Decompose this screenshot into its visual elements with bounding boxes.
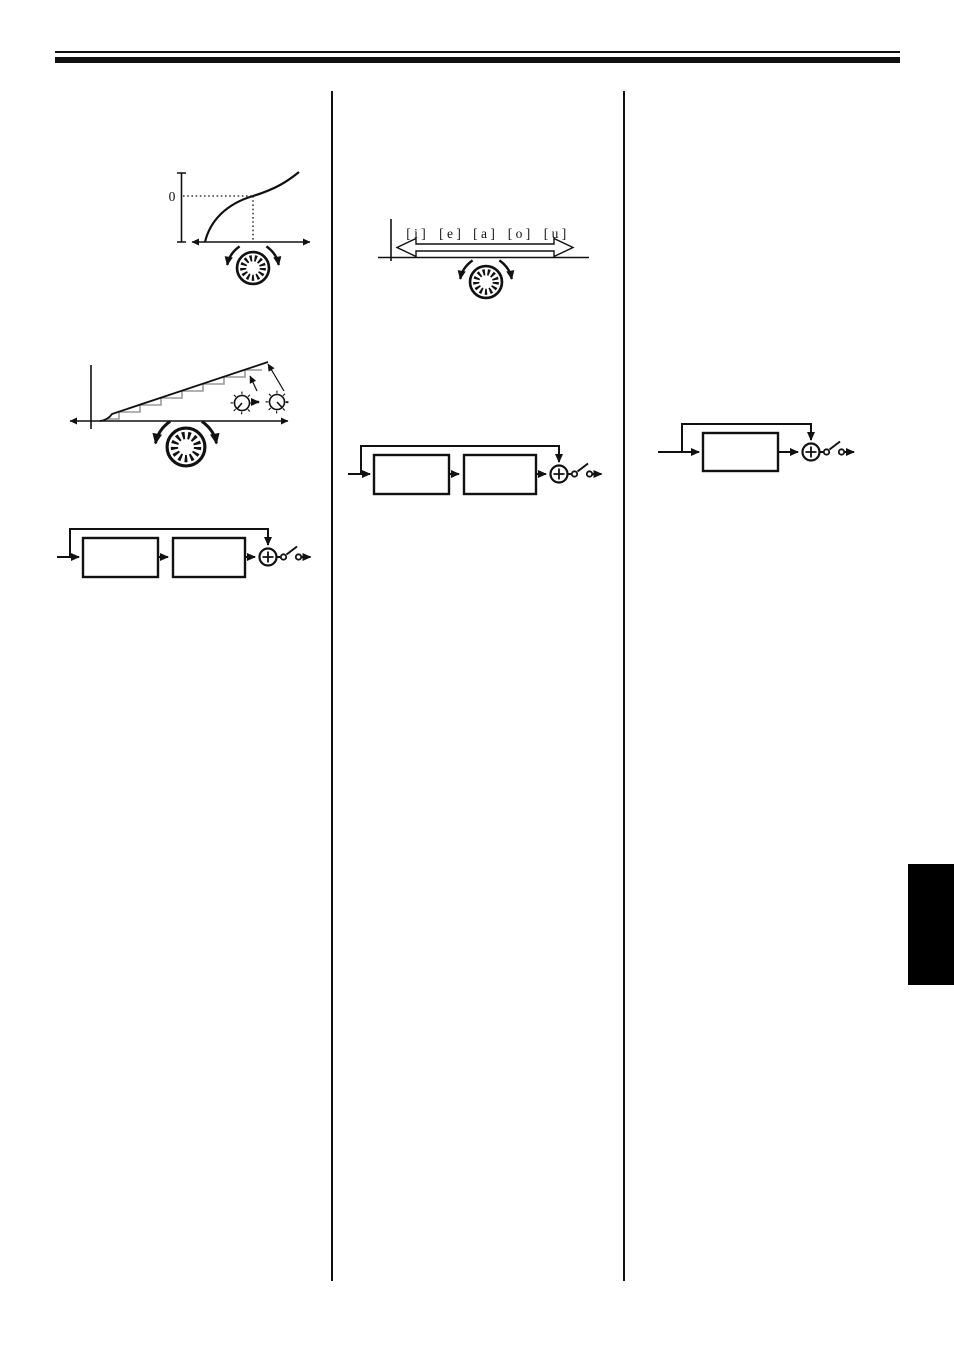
velocity-curve-figure: 0 — [169, 172, 310, 284]
rotary-dial-icon — [156, 421, 217, 466]
double-headed-arrow-icon — [397, 239, 573, 257]
zero-label: 0 — [169, 189, 176, 204]
pointer-arrow-line — [268, 364, 284, 391]
knob-before-icon — [232, 393, 252, 413]
vowel-label-e: [ e ] — [439, 226, 461, 241]
figures-layer: 0 — [0, 0, 954, 1350]
single-stage-diagram-right — [658, 424, 854, 471]
vowel-label-a: [ a ] — [473, 226, 495, 241]
vowel-scale-figure: [ i ] [ e ] [ a ] [ o ] [ u ] — [378, 219, 589, 298]
two-stage-diagram-left — [57, 529, 311, 577]
two-stage-diagram-middle — [348, 446, 602, 494]
response-curve — [205, 172, 299, 242]
pointer-arrow-steps — [250, 376, 257, 391]
staircase-steps — [106, 370, 262, 419]
y-axis — [177, 173, 186, 242]
knob-after-icon — [267, 392, 287, 412]
vowel-label-o: [ o ] — [508, 226, 531, 241]
rotary-dial-icon — [460, 260, 512, 298]
vowel-label-i: [ i ] — [406, 226, 426, 241]
vowel-label-u: [ u ] — [544, 226, 567, 241]
manual-page: 0 — [0, 0, 954, 1350]
rotary-dial-icon — [227, 246, 279, 284]
staircase-graph-figure — [70, 362, 288, 466]
